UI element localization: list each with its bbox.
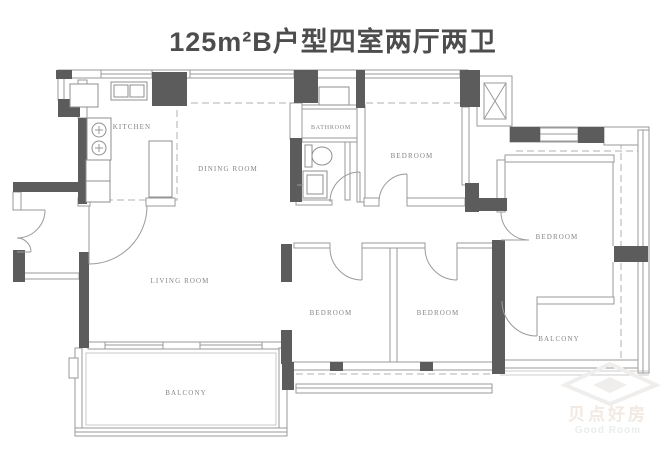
bedroom-mid-left-door bbox=[330, 248, 362, 280]
floor-plan-drawing: KITCHEN DINING ROOM BATHROOM BEDROOM BED… bbox=[0, 0, 666, 450]
room-label-bedroom-mid-right: BEDROOM bbox=[417, 309, 460, 317]
balcony-right-door bbox=[502, 301, 537, 336]
shower-icon bbox=[319, 87, 349, 105]
room-label-dining: DINING ROOM bbox=[198, 165, 258, 173]
bedroom-mid-right-door bbox=[425, 248, 457, 280]
toilet-icon bbox=[305, 145, 332, 167]
bedroom-top-door bbox=[379, 174, 407, 202]
stove-icon bbox=[87, 118, 111, 160]
room-label-bathroom: BATHROOM bbox=[311, 125, 351, 131]
room-label-bedroom-right: BEDROOM bbox=[536, 233, 579, 241]
floor-plan-page: 125m²B户型四室两厅两卫 bbox=[0, 0, 666, 450]
room-label-kitchen: KITCHEN bbox=[113, 123, 151, 131]
room-label-living: LIVING ROOM bbox=[151, 277, 210, 285]
entry-double-door bbox=[17, 210, 45, 252]
watermark-text-cn: 贝点好房 bbox=[568, 404, 648, 424]
fridge-icon bbox=[70, 84, 98, 107]
room-label-bedroom-mid-left: BEDROOM bbox=[310, 309, 353, 317]
room-label-balcony-left: BALCONY bbox=[165, 389, 207, 397]
kitchen-island-icon bbox=[149, 141, 172, 197]
kitchen-counter-icon bbox=[86, 160, 110, 202]
room-label-balcony-right: BALCONY bbox=[538, 335, 580, 343]
room-label-bedroom-top: BEDROOM bbox=[391, 152, 434, 160]
kitchen-sink-icon bbox=[111, 82, 147, 100]
bedroom-right-door bbox=[501, 212, 529, 240]
watermark-text-en: Good Room bbox=[575, 425, 641, 436]
hall-door bbox=[89, 206, 147, 264]
fixtures bbox=[70, 82, 506, 202]
